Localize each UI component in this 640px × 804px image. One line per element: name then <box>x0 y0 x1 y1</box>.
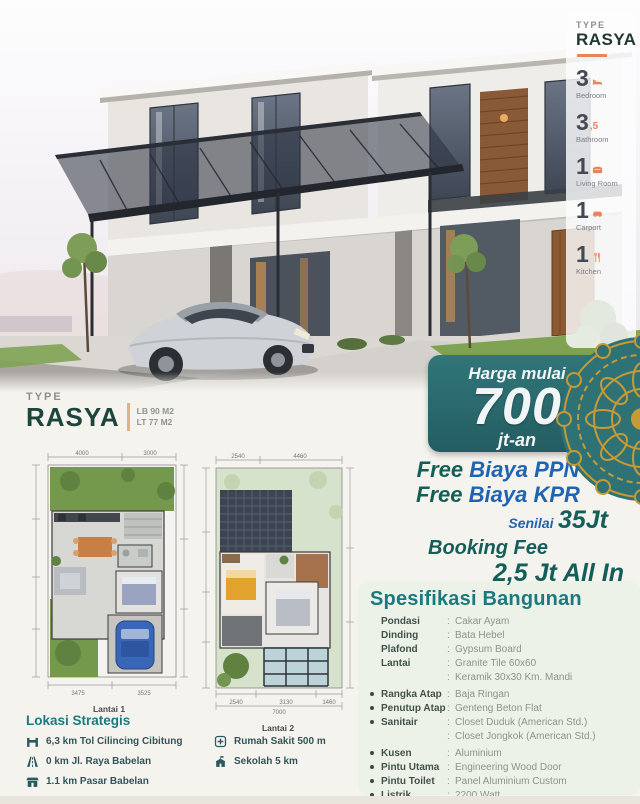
bed-icon <box>592 76 603 87</box>
location-item-hospital: Rumah Sakit 500 m <box>214 735 358 748</box>
booking-fee-amount: 2,5 Jt All In <box>366 559 630 587</box>
plan1-dim: 3475 <box>71 691 85 697</box>
plan2-dim: 1460 <box>322 700 336 706</box>
feature-bathroom: 3 ,5 Bathroom <box>576 111 636 144</box>
carport-count: 1 <box>576 199 589 222</box>
building-area: LB 90 M2 <box>137 406 174 417</box>
toll-gate-icon <box>26 735 39 748</box>
bedroom-count: 3 <box>576 67 589 90</box>
location-item-road: 0 km Jl. Raya Babelan <box>26 755 214 768</box>
sofa-icon <box>592 164 603 175</box>
kitchen-label: Kitchen <box>576 267 636 276</box>
bathroom-count-suffix: ,5 <box>590 122 598 132</box>
free-label: Free <box>417 457 463 482</box>
school-icon <box>214 755 227 768</box>
spec-row-kusen: Kusen : Aluminium <box>370 748 632 760</box>
spec-row-pintu-utama: Pintu Utama : Engineering Wood Door <box>370 762 632 774</box>
wood-slat-panel <box>480 88 528 204</box>
spec-row-rangka-atap: Rangka Atap : Baja Ringan <box>370 689 632 701</box>
promo-line-senilai: Senilai 35Jt <box>366 506 630 534</box>
spec-row-sanitair-2: : Closet Jongkok (American Std.) <box>370 731 632 743</box>
specs-panel: Spesifikasi Bangunan Pondasi : Cakar Aya… <box>358 581 640 795</box>
car-icon <box>592 208 603 219</box>
bedroom-label: Bedroom <box>576 91 636 100</box>
orange-underline <box>577 54 607 57</box>
floorplan-1: 4000 3000 3475 3525 Lantai 1 <box>26 449 192 714</box>
type-block: TYPE RASYA LB 90 M2 LT 77 M2 <box>26 391 174 431</box>
living-room-label: Living Room <box>576 179 636 188</box>
location-title: Lokasi Strategis <box>26 713 358 728</box>
feature-carport: 1 Carport <box>576 199 636 232</box>
senilai-amount: 35Jt <box>558 506 608 534</box>
location-item-market: 1.1 km Pasar Babelan <box>26 775 214 788</box>
spec-row-dinding: Dinding : Bata Hebel <box>370 630 632 642</box>
sidebar-type-label: TYPE <box>576 20 636 30</box>
feature-kitchen: 1 Kitchen <box>576 243 636 276</box>
road-icon <box>26 755 39 768</box>
plan2-dim: 3130 <box>279 700 293 706</box>
sidebar-type-name: RASYA <box>576 30 636 50</box>
plan2-dim: 2540 <box>231 454 245 460</box>
sea-horizon <box>0 316 72 332</box>
divider-bar <box>127 403 130 431</box>
senilai-label: Senilai <box>508 515 553 531</box>
type-block-name: RASYA <box>26 404 120 430</box>
floorplan-1-drawing: 4000 3000 3475 3525 <box>26 449 192 697</box>
floorplan-2: 2540 4460 2540 3130 1460 7000 <box>198 452 358 733</box>
hospital-icon <box>214 735 227 748</box>
free-label: Free <box>416 482 462 507</box>
spec-row-plafond: Plafond : Gypsum Board <box>370 644 632 656</box>
spec-row-lantai: Lantai : Granite Tile 60x60 <box>370 658 632 670</box>
spec-row-pintu-toilet: Pintu Toilet : Panel Aluminium Custom <box>370 776 632 788</box>
plan2-dim: 2540 <box>229 700 243 706</box>
location-block: Lokasi Strategis 6,3 km Tol Cilincing Ci… <box>26 713 358 795</box>
plan1-dim: 3000 <box>143 451 157 457</box>
bathroom-label: Bathroom <box>576 135 636 144</box>
spec-row-pondasi: Pondasi : Cakar Ayam <box>370 616 632 628</box>
location-item-school: Sekolah 5 km <box>214 755 358 768</box>
feature-living-room: 1 Living Room <box>576 155 636 188</box>
booking-fee-label: Booking Fee <box>366 537 630 559</box>
type-feature-sidebar: TYPE RASYA 3 Bedroom 3 ,5 Bathroom 1 Liv… <box>566 12 636 348</box>
specs-title: Spesifikasi Bangunan <box>370 588 632 611</box>
kitchen-icon <box>592 252 603 263</box>
spec-row-sanitair: Sanitair : Closet Duduk (American Std.) <box>370 717 632 729</box>
gold-mandala-ornament <box>556 333 640 505</box>
floorplan-2-drawing: 2540 4460 2540 3130 1460 7000 <box>198 452 358 716</box>
market-icon <box>26 775 39 788</box>
feature-bedroom: 3 Bedroom <box>576 67 636 100</box>
living-room-count: 1 <box>576 155 589 178</box>
location-item-toll: 6,3 km Tol Cilincing Cibitung <box>26 735 214 748</box>
carport-label: Carport <box>576 223 636 232</box>
bathroom-count: 3 <box>576 111 589 134</box>
plan2-dim: 4460 <box>293 454 307 460</box>
house-render-illustration <box>0 0 640 392</box>
spec-row-penutup-atap: Penutup Atap : Genteng Beton Flat <box>370 703 632 715</box>
bottom-edge-strip <box>0 796 640 804</box>
plan1-dim: 4000 <box>75 451 89 457</box>
plan1-dim: 3525 <box>137 691 151 697</box>
kitchen-count: 1 <box>576 243 589 266</box>
spec-row-lantai-2: : Keramik 30x30 Km. Mandi <box>370 672 632 684</box>
land-area: LT 77 M2 <box>137 417 174 428</box>
